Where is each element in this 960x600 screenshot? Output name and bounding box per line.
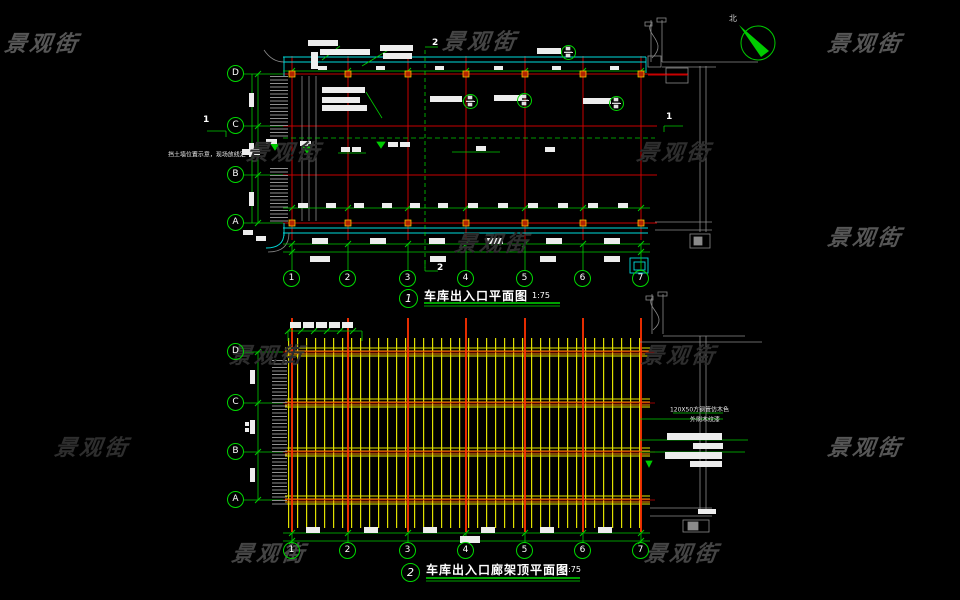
detail-callout-bubble xyxy=(463,94,478,109)
section-mark-2-top: 2 xyxy=(432,38,438,48)
grid-bubble-col: 7 xyxy=(632,270,649,287)
grid-bubble-col: 2 xyxy=(339,270,356,287)
drawing2-number-bubble: 2 xyxy=(401,563,420,582)
detail-callout-bubble xyxy=(609,96,624,111)
drawing1-scale: 1:75 xyxy=(532,291,550,300)
grid-bubble-col: 3 xyxy=(399,270,416,287)
section-mark-1-left: 1 xyxy=(203,115,209,125)
grid-bubble-row-d: D xyxy=(227,65,244,82)
grid-bubble-col: 1 xyxy=(283,270,300,287)
north-label: 北 xyxy=(729,13,737,24)
grid-bubble-col: 4 xyxy=(457,542,474,559)
grid-bubble-col: 2 xyxy=(339,542,356,559)
cad-sheet: 景观街 景观街 景观街 景观街 景观街 景观街 景观街 景观街 景观街 景观街 … xyxy=(0,0,960,600)
grid-bubble-col: 5 xyxy=(516,270,533,287)
grid-bubble-col: 1 xyxy=(283,542,300,559)
grid-bubble-col: 4 xyxy=(457,270,474,287)
grid-bubble-row-a: A xyxy=(227,491,244,508)
grid-bubble-row-a: A xyxy=(227,214,244,231)
grid-bubble-row-c: C xyxy=(227,394,244,411)
grid-bubble-col: 6 xyxy=(574,542,591,559)
drawing2-scale: 1:75 xyxy=(563,565,581,574)
grid-bubble-row-d: D xyxy=(227,343,244,360)
top-plan-dim-text-blocks xyxy=(242,40,628,262)
section-mark-1-right: 1 xyxy=(666,112,672,122)
ramp-hatch-top-upper xyxy=(270,76,288,138)
north-arrow-icon xyxy=(739,25,775,60)
grid-bubble-row-b: B xyxy=(227,443,244,460)
section-mark-2-bottom: 2 xyxy=(437,263,443,273)
ramp-hatch-top-lower xyxy=(270,168,288,222)
pergola-note-1: 120X50方钢管仿木色 xyxy=(670,404,729,413)
detail-callout-bubble xyxy=(517,93,532,108)
note-left-text: 挡土墙位置示意，现场放线定 xyxy=(168,149,246,158)
pergola-slats xyxy=(287,338,648,528)
detail-callout-bubble xyxy=(561,45,576,60)
grid-bubble-col: 5 xyxy=(516,542,533,559)
grid-bubble-col: 3 xyxy=(399,542,416,559)
grid-bubble-row-b: B xyxy=(227,166,244,183)
pergola-note-2: 外刷木纹漆 xyxy=(690,414,720,423)
drawing1-number-bubble: 1 xyxy=(399,289,418,308)
grid-bubble-col: 6 xyxy=(574,270,591,287)
drawing1-title: 车库出入口平面图 xyxy=(424,287,528,304)
drawing2-title: 车库出入口廊架顶平面图 xyxy=(426,561,569,578)
grid-bubble-col: 7 xyxy=(632,542,649,559)
ramp-hatch-bottom xyxy=(272,360,287,507)
grid-bubble-row-c: C xyxy=(227,117,244,134)
